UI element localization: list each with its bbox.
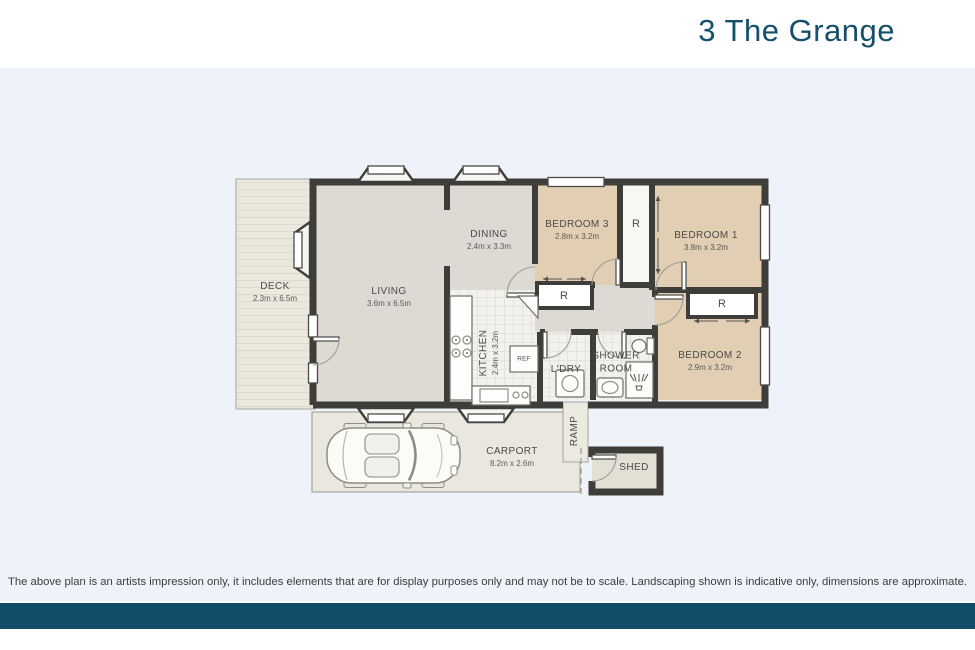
robe-label-bedroom2: R (718, 298, 726, 310)
room-label-ramp: RAMP (569, 416, 582, 447)
room-label-bedroom1: BEDROOM 1 3.8m x 3.2m (674, 230, 738, 253)
room-label-living: LIVING 3.6m x 6.5m (367, 286, 411, 309)
kitchen-bench (450, 296, 472, 400)
robe-label-mid: R (632, 218, 640, 230)
vanity-icon (597, 378, 623, 397)
car-illustration (327, 423, 460, 488)
bay-window-living-top (358, 166, 414, 182)
page-title: 3 The Grange (698, 13, 895, 49)
window-bedroom1 (761, 205, 770, 260)
bay-window-kitchen-bottom (458, 408, 514, 422)
floor-plan-canvas: DECK 2.3m x 6.5m LIVING 3.6m x 6.5m DINI… (0, 68, 975, 601)
room-label-laundry: L'DRY (551, 364, 581, 377)
bay-window-dining-top (453, 166, 509, 182)
footer-bar (0, 603, 975, 629)
bay-window-living-bottom (358, 408, 414, 422)
room-label-carport: CARPORT 8.2m x 2.6m (486, 446, 538, 469)
room-label-dining: DINING 2.4m x 3.3m (467, 229, 511, 252)
window-living-left-upper (309, 315, 318, 337)
room-label-bedroom3: BEDROOM 3 2.8m x 3.2m (545, 219, 609, 242)
room-label-shower: SHOWER ROOM (592, 351, 639, 376)
robe-label-bedroom3: R (560, 290, 568, 302)
bay-window-living-left (294, 222, 310, 278)
robe-mid-floor (620, 182, 652, 285)
room-label-bedroom2: BEDROOM 2 2.9m x 3.2m (678, 350, 742, 373)
disclaimer-text: The above plan is an artists impression … (0, 576, 975, 588)
window-bedroom2 (761, 327, 770, 385)
window-living-left-lower (309, 363, 318, 383)
oven-icon (472, 386, 530, 405)
page: 3 The Grange (0, 0, 975, 650)
room-label-kitchen: KITCHEN 2.4m x 3.2m (478, 330, 501, 377)
window-bedroom3 (548, 178, 604, 187)
fridge-label: REF (517, 356, 531, 363)
room-label-shed: SHED (619, 462, 648, 475)
room-label-deck: DECK 2.3m x 6.5m (253, 281, 297, 304)
